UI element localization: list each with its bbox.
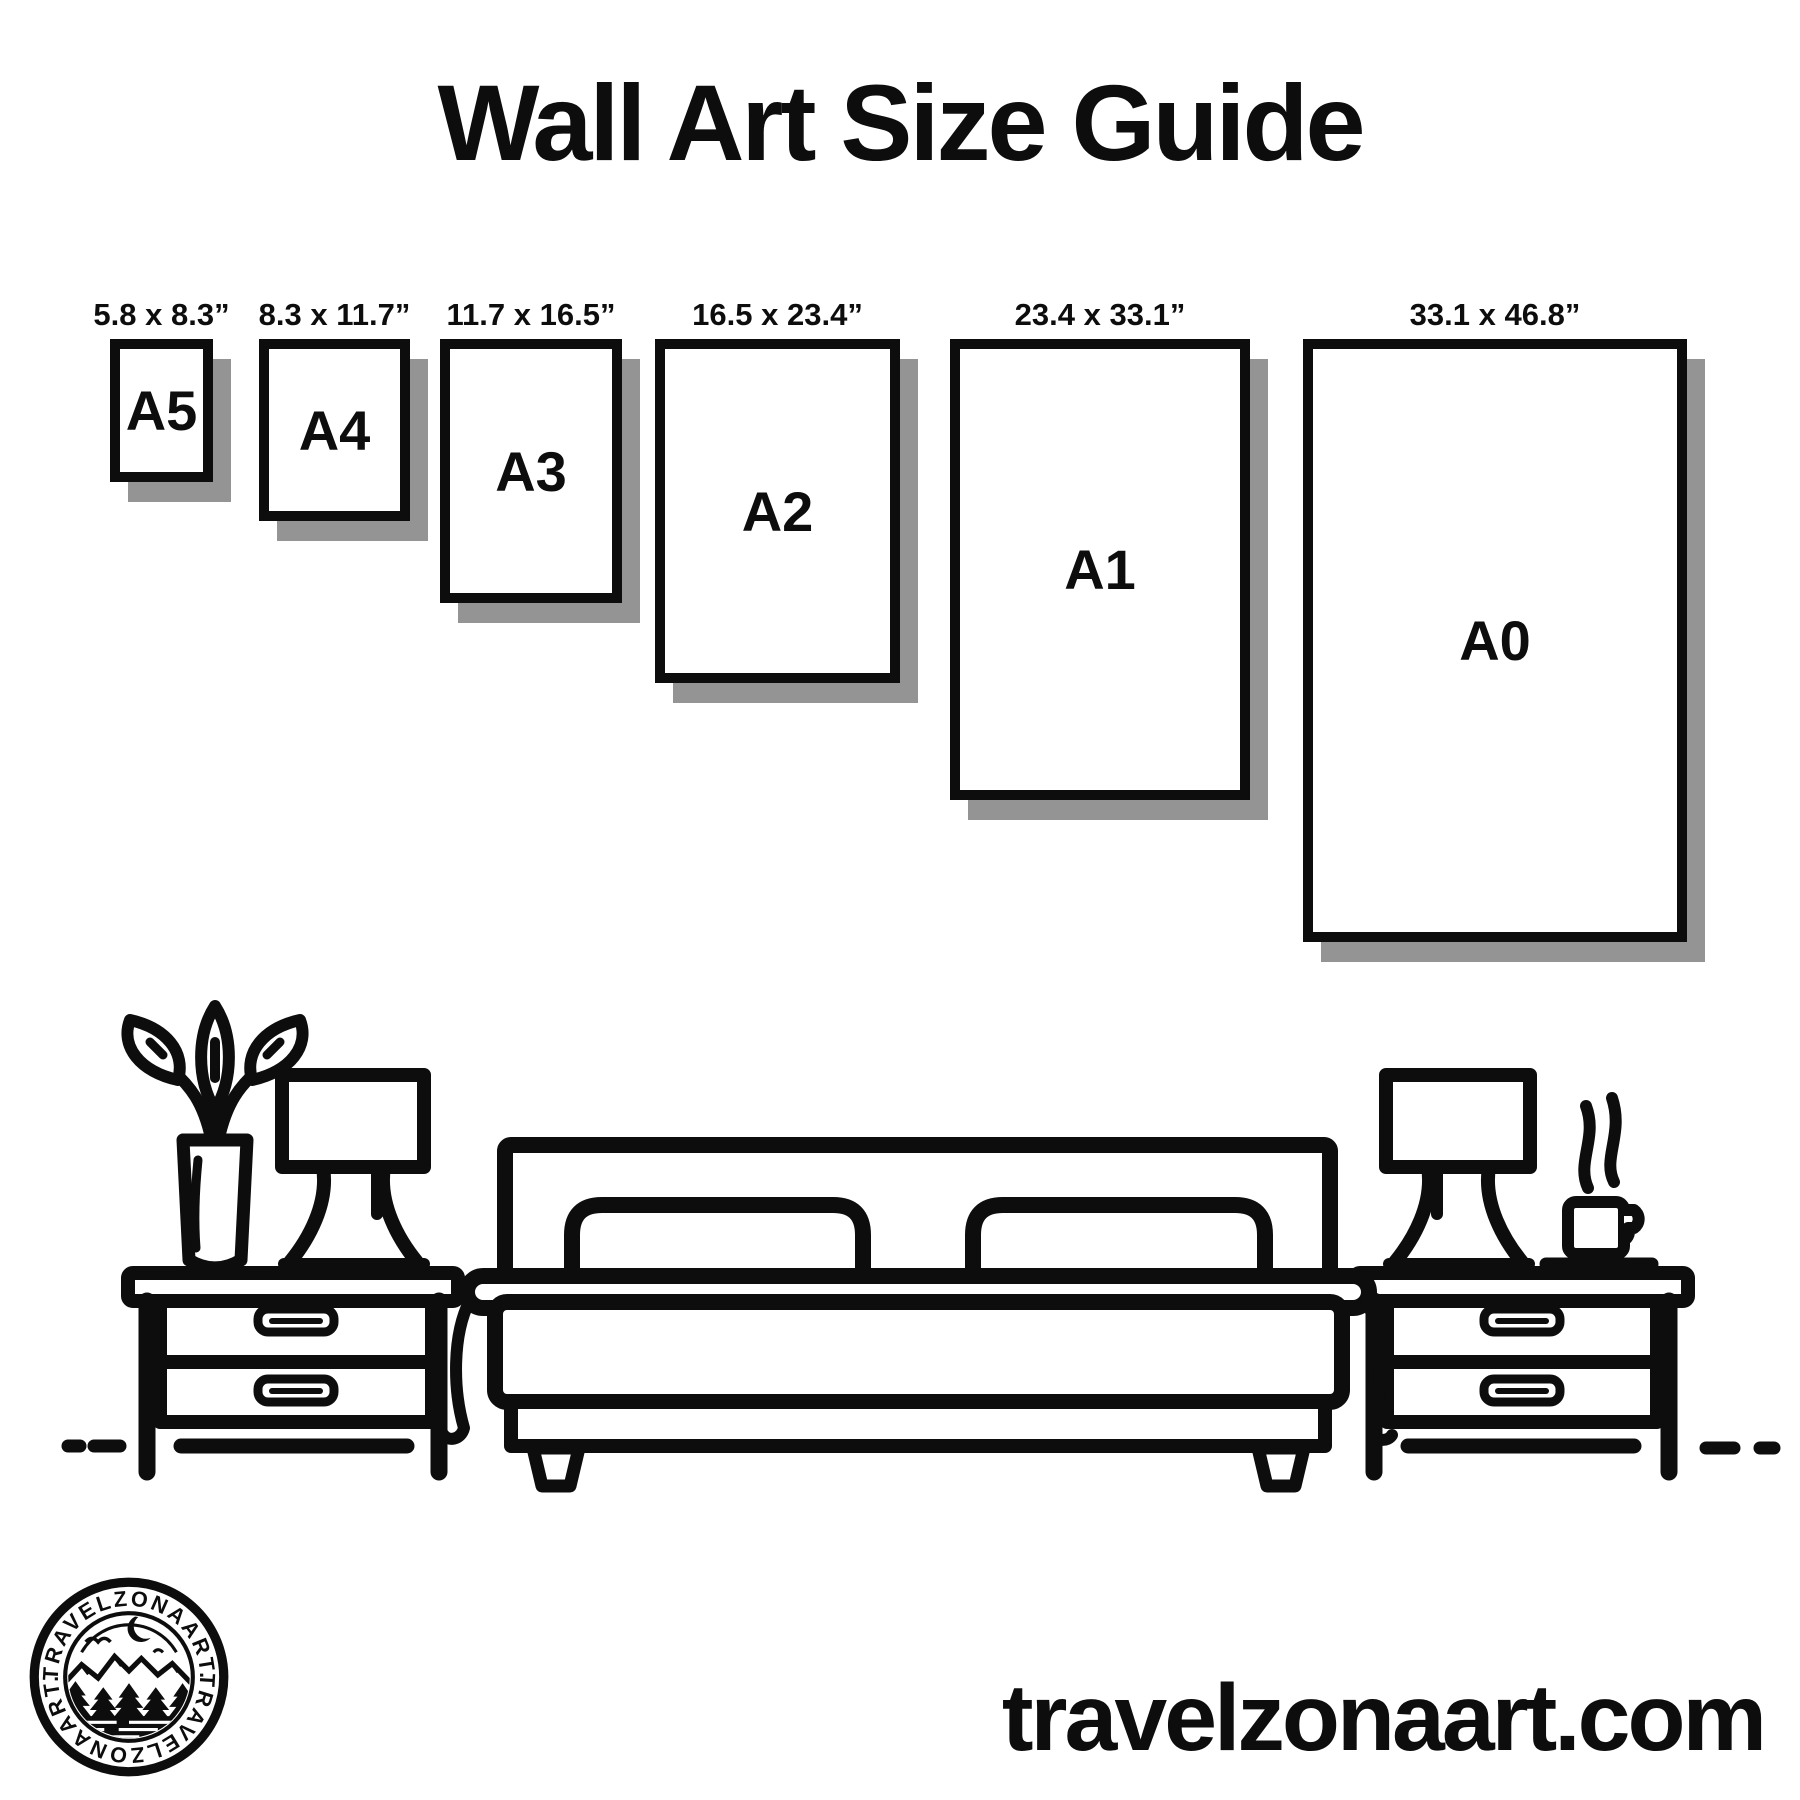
nightstand-right xyxy=(1355,1273,1688,1472)
size-label-a1: 23.4 x 33.1” xyxy=(1015,297,1186,333)
paper-size-a5: 5.8 x 8.3” A5 xyxy=(110,339,213,482)
paper-size-a2: 16.5 x 23.4” A2 xyxy=(655,339,900,683)
table-lamp-right xyxy=(1386,1075,1530,1264)
paper-size-a0: 33.1 x 46.8” A0 xyxy=(1303,339,1687,942)
paper-letter-a5: A5 xyxy=(126,378,198,443)
size-label-a4: 8.3 x 11.7” xyxy=(259,297,411,333)
wall-art-size-guide-poster: Wall Art Size Guide 5.8 x 8.3” A5 8.3 x … xyxy=(0,0,1800,1800)
paper-letter-a4: A4 xyxy=(299,398,371,463)
paper-letter-a1: A1 xyxy=(1064,537,1136,602)
brand-logo: TRAVELZONAART. TRAVELZONAART. xyxy=(26,1574,232,1780)
size-label-a5: 5.8 x 8.3” xyxy=(93,297,229,333)
website-url: travelzonaart.com xyxy=(1002,1664,1764,1773)
bed xyxy=(443,1145,1392,1486)
size-label-a0: 33.1 x 46.8” xyxy=(1410,297,1581,333)
paper-letter-a2: A2 xyxy=(742,479,814,544)
bed-base xyxy=(511,1402,1325,1446)
bedroom-illustration xyxy=(0,990,1800,1550)
table-lamp-left xyxy=(282,1075,424,1264)
nightstand-left xyxy=(128,1273,458,1472)
coffee-cup xyxy=(1546,1098,1652,1264)
paper-size-a4: 8.3 x 11.7” A4 xyxy=(259,339,410,521)
bed-leg-left xyxy=(533,1448,579,1486)
size-label-a2: 16.5 x 23.4” xyxy=(692,297,863,333)
paper-letter-a3: A3 xyxy=(495,439,567,504)
size-label-a3: 11.7 x 16.5” xyxy=(447,297,616,333)
sheet xyxy=(495,1302,1342,1402)
paper-size-a3: 11.7 x 16.5” A3 xyxy=(440,339,622,603)
paper-letter-a0: A0 xyxy=(1459,608,1531,673)
bed-leg-right xyxy=(1258,1448,1304,1486)
page-title: Wall Art Size Guide xyxy=(0,60,1800,185)
paper-size-a1: 23.4 x 33.1” A1 xyxy=(950,339,1250,800)
